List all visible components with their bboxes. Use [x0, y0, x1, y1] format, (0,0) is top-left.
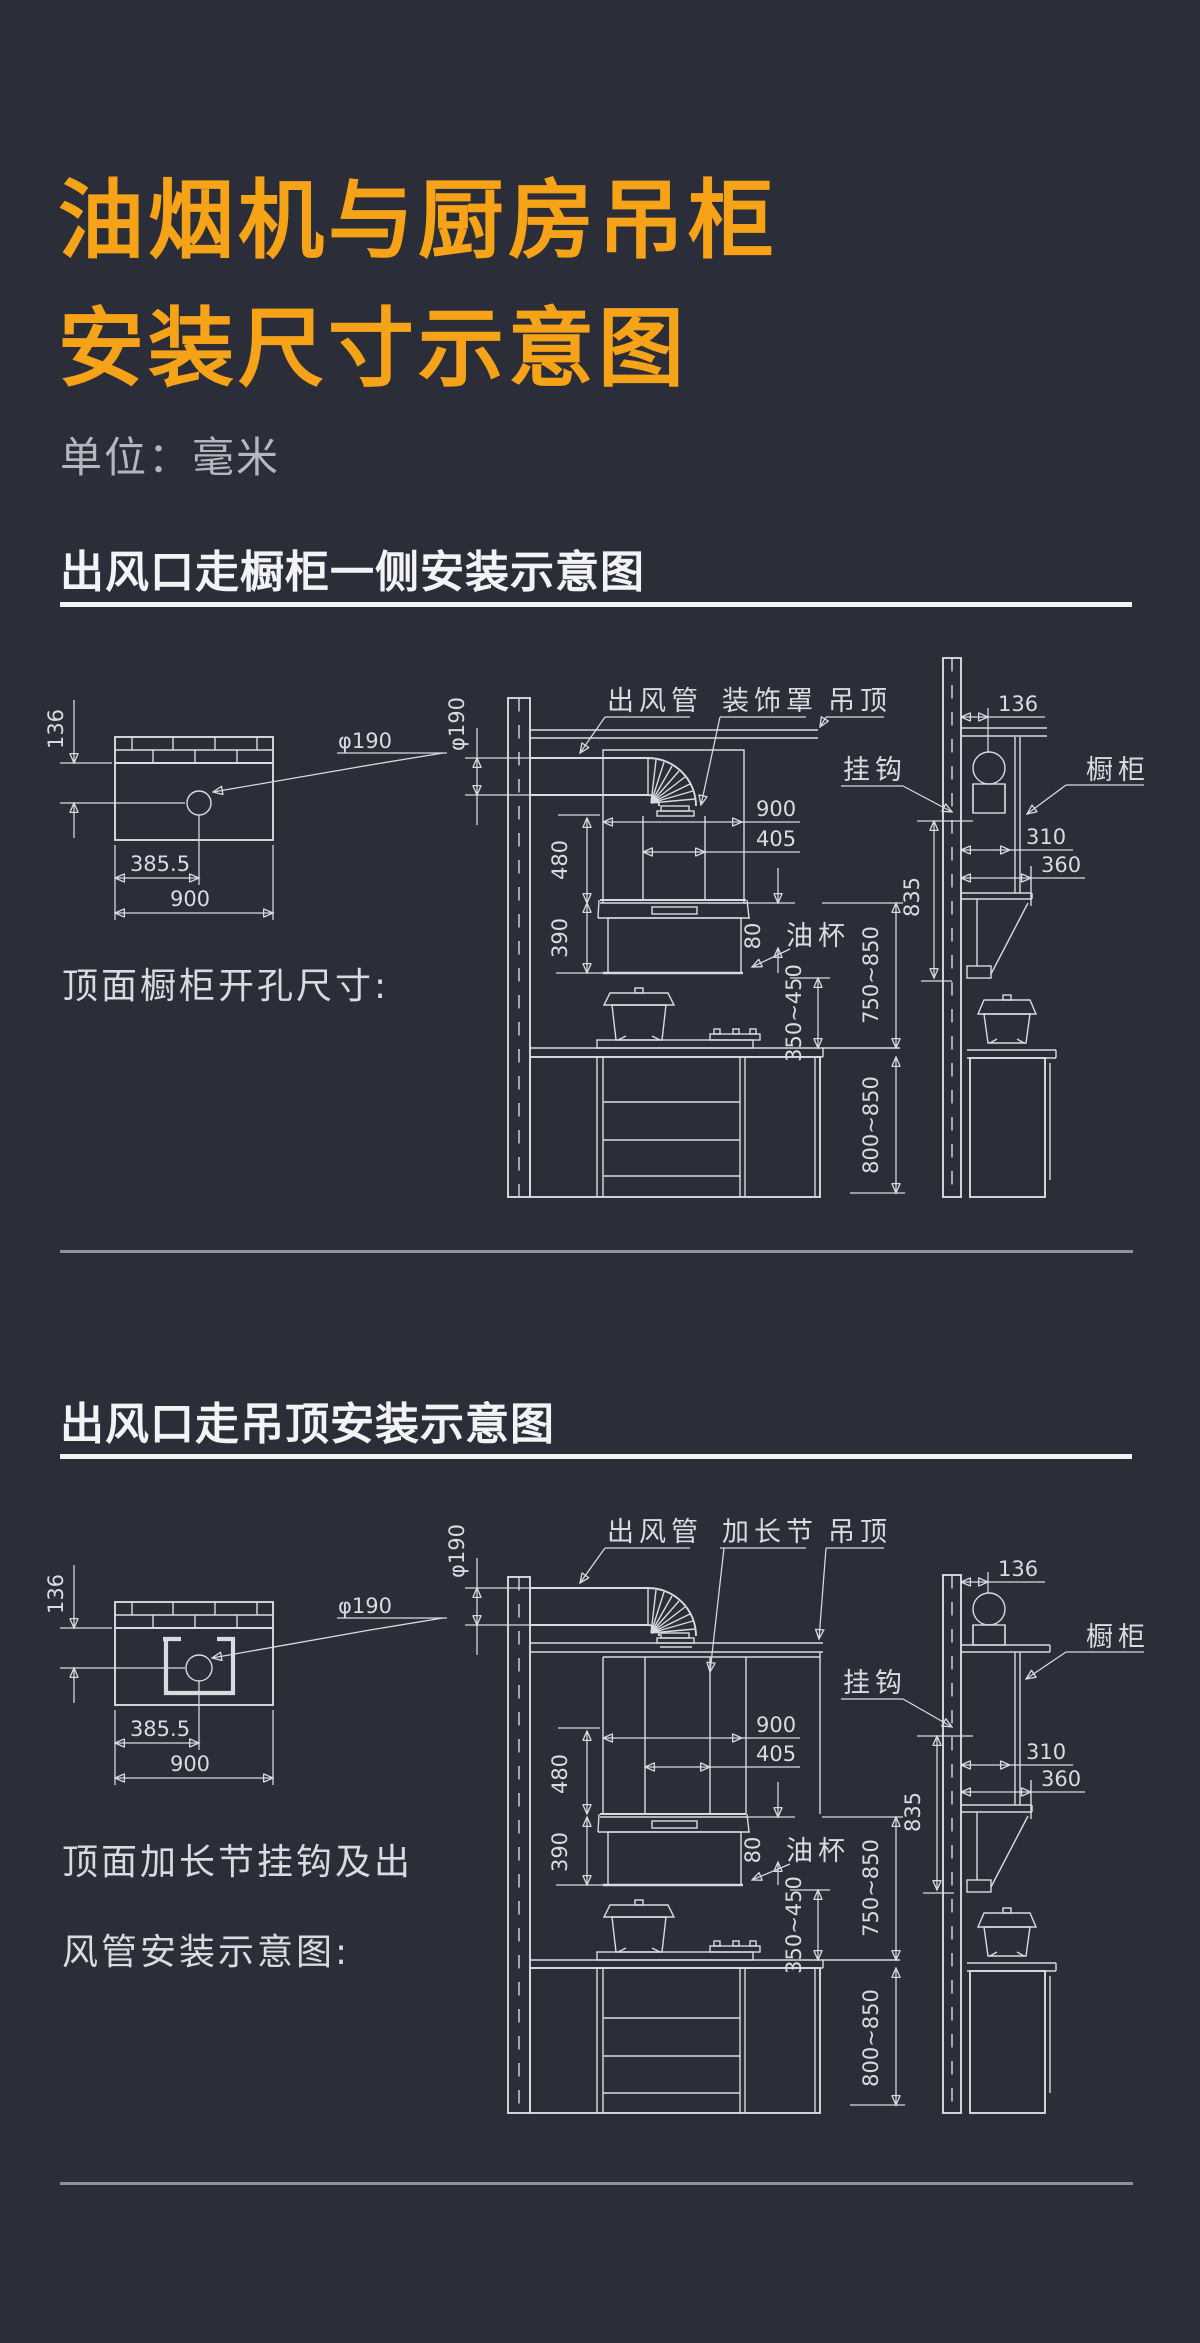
s2-label-oilcup: 油杯: [786, 1836, 850, 1867]
s2-vent-hole: [186, 1655, 212, 1681]
s1-burner: [710, 1029, 760, 1040]
s2-label-cabinet: 橱柜: [1086, 1622, 1150, 1653]
page: { "colors": { "background": "#2b2d39", "…: [0, 0, 1200, 2343]
s1-pot: [604, 988, 674, 1040]
s2-dim-900-cutout: 900: [170, 1752, 210, 1776]
s1-dim-835: 835: [900, 877, 924, 917]
s2-dim-385: 385.5: [130, 1717, 190, 1741]
s2-dim-800-850: 800~850: [859, 1989, 883, 2087]
s1-dim-390: 390: [548, 918, 572, 958]
s1-label-duct: 出风管: [607, 686, 703, 717]
s1-dim-900-hood: 900: [756, 797, 796, 821]
s2-dim-80: 80: [741, 1837, 765, 1864]
s1-dim-80: 80: [741, 923, 765, 950]
s1-dim-900-cutout: 900: [170, 887, 210, 911]
technical-drawing-canvas: φ190 136 385.5 900 φ190: [0, 0, 1200, 2343]
s1-dim-136-left: 136: [44, 709, 68, 749]
s2-label-ceiling: 吊顶: [828, 1517, 892, 1548]
s2-burner: [710, 1941, 760, 1952]
s1-duct-diameter: φ190: [445, 697, 469, 751]
s2-duct-diameter: φ190: [445, 1524, 469, 1578]
s1-label-hook: 挂钩: [843, 755, 907, 786]
s2-dim-310: 310: [1026, 1740, 1066, 1764]
s1-dim-750-850: 750~850: [859, 926, 883, 1024]
s2-side-view: 136 挂钩 橱柜 835 310 36: [841, 1557, 1150, 2113]
s2-hole-diameter: φ190: [338, 1594, 392, 1618]
s2-dim-480: 480: [548, 1754, 572, 1794]
s1-dim-310: 310: [1026, 825, 1066, 849]
s2-label-extension: 加长节: [722, 1517, 818, 1548]
s1-side-view: 136 挂钩 橱柜 835 310 360: [841, 658, 1150, 1197]
s2-pot: [604, 1900, 674, 1952]
s1-dim-800-850: 800~850: [859, 1076, 883, 1174]
s1-label-cover: 装饰罩: [722, 686, 818, 717]
s1-label-oilcup: 油杯: [786, 921, 850, 952]
s2-dim-136-left: 136: [44, 1574, 68, 1614]
s1-dim-350-450: 350~450: [782, 964, 806, 1062]
s2-label-duct: 出风管: [607, 1517, 703, 1548]
s2-label-hook: 挂钩: [843, 1668, 907, 1699]
s1-side-pot: [978, 995, 1036, 1043]
s1-duct-section: [973, 752, 1005, 784]
s1-vent-hole: [187, 791, 211, 815]
s2-dim-900-hood: 900: [756, 1713, 796, 1737]
s2-dim-750-850: 750~850: [859, 1839, 883, 1937]
s1-dim-385: 385.5: [130, 852, 190, 876]
s1-label-ceiling: 吊顶: [828, 686, 892, 717]
s1-label-cabinet: 橱柜: [1086, 755, 1150, 786]
s2-cutout-diagram: φ190 136 385.5 900: [44, 1565, 447, 1785]
s2-duct-section: [973, 1593, 1005, 1625]
s1-dim-480: 480: [548, 840, 572, 880]
s2-front-view: φ190 出风管 加长节 吊顶: [445, 1517, 905, 2113]
s1-dim-360: 360: [1041, 853, 1081, 877]
s2-dim-350-450: 350~450: [782, 1876, 806, 1974]
s1-dim-136-side: 136: [998, 692, 1038, 716]
s2-dim-405: 405: [756, 1742, 796, 1766]
s2-dim-835: 835: [901, 1792, 925, 1832]
s2-dim-136-side: 136: [998, 1557, 1038, 1581]
s1-front-view: φ190 出风管 装饰罩 吊顶: [445, 686, 905, 1197]
s1-dim-405: 405: [756, 827, 796, 851]
s2-dim-360: 360: [1041, 1767, 1081, 1791]
s1-cutout-diagram: φ190 136 385.5 900: [44, 700, 447, 920]
s2-side-pot: [978, 1908, 1036, 1956]
s2-dim-390: 390: [548, 1832, 572, 1872]
s1-hole-diameter: φ190: [338, 729, 392, 753]
